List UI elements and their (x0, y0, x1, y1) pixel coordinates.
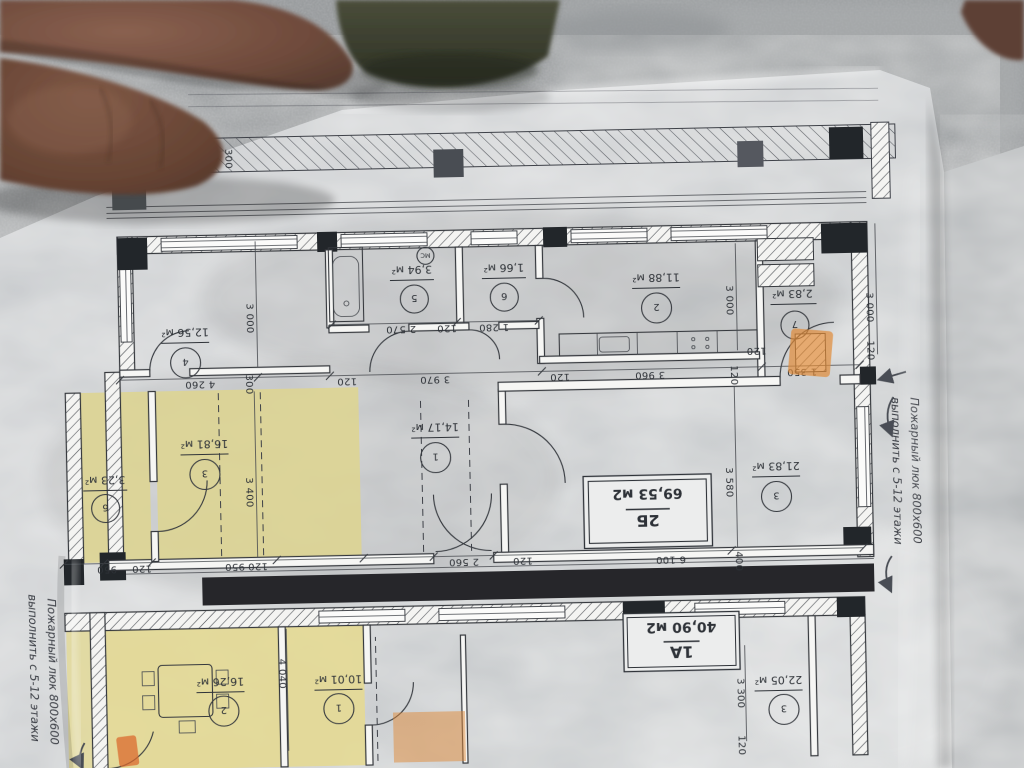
dim-label: 120 (746, 345, 766, 356)
dim-label: 3 400 (243, 477, 255, 507)
room-area: 16,26 м² (196, 675, 244, 689)
wall-pier (837, 597, 865, 618)
dim-label: 3 000 (723, 285, 735, 315)
wall-pier (117, 238, 148, 271)
concrete-stain (550, 8, 730, 52)
dim-label: 3 970 (420, 373, 450, 385)
balcony-block (829, 127, 864, 160)
dim-label: 120 (132, 563, 152, 574)
adjacent-room-fill (155, 387, 362, 561)
vent-shaft (758, 264, 814, 287)
dim-label: 3 000 (863, 292, 875, 322)
room-area: 16,81 м² (180, 437, 228, 451)
dim-label: 300 (243, 374, 254, 394)
room-number: 4 (182, 356, 189, 367)
balcony-block (737, 141, 764, 168)
wall-segment (65, 393, 84, 563)
flat-code: 2Б (636, 511, 660, 530)
dim-label: 120 (437, 322, 457, 333)
room-area: 11,88 м² (632, 270, 680, 284)
dim-label: 400 (733, 551, 744, 571)
room-area: 14,17 м² (411, 420, 459, 434)
room-number: 1 (336, 702, 343, 713)
wall-segment (90, 613, 108, 768)
dim-label: 4 260 (185, 378, 215, 390)
room-number: 2 (653, 301, 660, 312)
room-area: 10,01 м² (314, 672, 362, 686)
room-area: 21,83 м² (752, 459, 800, 473)
room-number: 1 (432, 451, 439, 462)
balcony-block (433, 149, 464, 178)
orange-highlight (116, 735, 140, 767)
dim-label: 3 580 (723, 467, 735, 497)
room-area: 3,94 м² (391, 263, 432, 277)
dim-label: 120 (513, 555, 533, 566)
dim-label: 3 300 (734, 678, 746, 708)
room-number: 3 (781, 702, 788, 713)
knuckle-highlight (8, 86, 132, 154)
room-number: 2 (221, 704, 228, 715)
dark-object-shade (362, 52, 538, 88)
orange-highlight (788, 328, 834, 377)
dim-label: 120 (248, 560, 268, 571)
room-number: 7 (792, 318, 799, 329)
room-area: 3,23 м² (85, 473, 126, 487)
flat-code: 1А (669, 642, 694, 662)
dim-label: 2 560 (449, 556, 479, 568)
dim-label: 3 000 (243, 303, 255, 333)
fire-hatch-marker (860, 366, 876, 384)
orange-highlight (393, 711, 466, 762)
wall-segment (850, 615, 868, 755)
dim-label: 950 (225, 561, 245, 572)
dim-label: 1 280 (479, 321, 509, 333)
flat-area: 69,53 м2 (612, 484, 683, 501)
wall-pier (821, 223, 868, 254)
room-number: 6 (501, 290, 508, 301)
vent-shaft (757, 238, 813, 261)
flat-area: 40,90 м2 (646, 618, 717, 635)
room-number: 3 (202, 467, 209, 478)
flat-label-2b: 2Б 69,53 м2 (583, 474, 712, 549)
dim-label: 120 (550, 371, 570, 382)
flat-label-1a: 1А 40,90 м2 (623, 611, 740, 671)
room-area: 22,05 м² (754, 673, 802, 687)
room-area: 2,83 м² (772, 287, 813, 301)
wall-pier (543, 227, 567, 247)
wall-pier (317, 232, 337, 252)
dim-label: 120 (864, 340, 875, 360)
dim-label: 2 570 (386, 323, 416, 335)
dim-label: 4 040 (276, 659, 288, 689)
room-number: 6 (102, 501, 109, 512)
washing-machine-label: МС (420, 251, 431, 259)
dim-label: 950 (97, 563, 117, 574)
a1-room-fill (285, 625, 366, 767)
dim-label: 300 (222, 149, 233, 169)
dim-label: 120 (728, 365, 739, 385)
scene-svg: 300 (0, 0, 1024, 768)
dim-label: 3 960 (635, 369, 665, 381)
room-area: 1,66 м² (483, 261, 524, 275)
balcony-end (871, 122, 891, 198)
dim-label: 6 100 (656, 553, 686, 565)
room-area: 12,56 м² (161, 325, 209, 339)
room-number: 5 (411, 292, 418, 303)
dim-label: 120 (736, 735, 747, 755)
room-number: 3 (773, 489, 780, 500)
dim-label: 120 (337, 375, 357, 386)
photo-of-floor-plan: 300 (0, 0, 1024, 768)
